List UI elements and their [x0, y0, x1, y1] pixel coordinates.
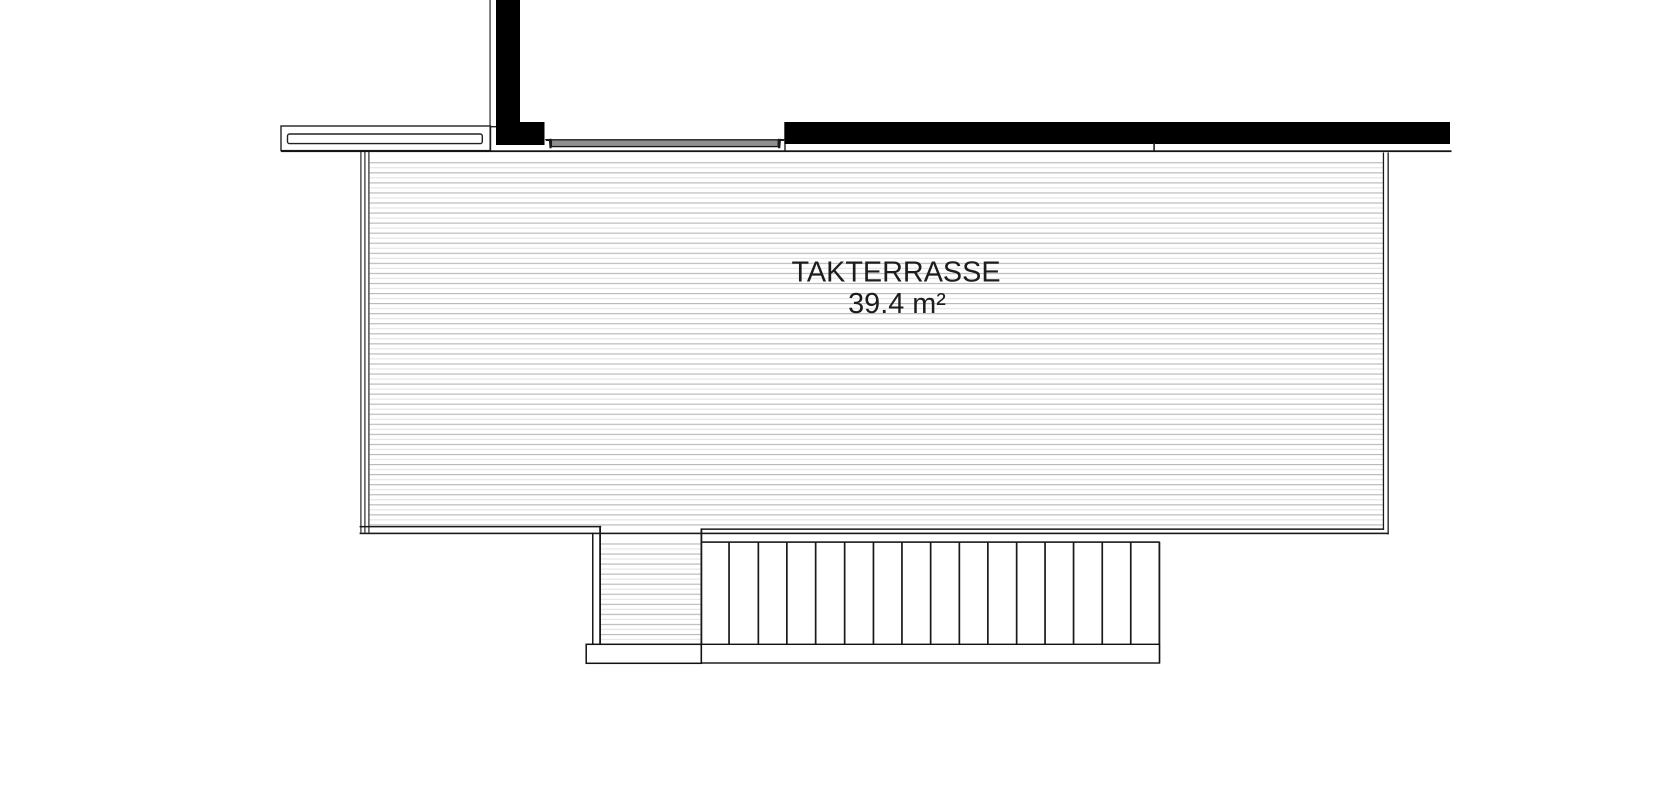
- svg-text:39.4 m²: 39.4 m²: [848, 288, 946, 320]
- svg-text:TAKTERRASSE: TAKTERRASSE: [791, 257, 1000, 289]
